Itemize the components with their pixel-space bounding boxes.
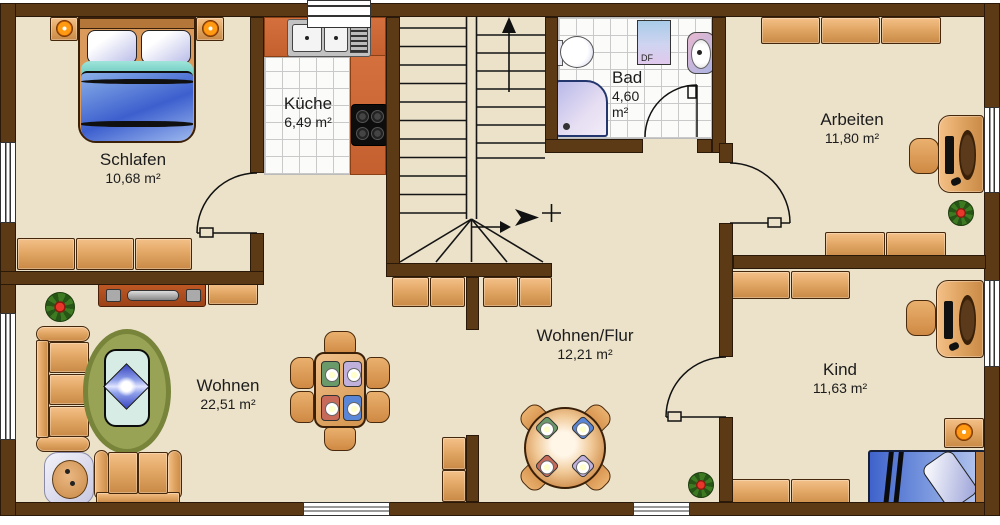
plate-icon <box>537 420 557 440</box>
armchair <box>44 452 94 505</box>
sink-basin-right <box>324 24 348 52</box>
round-table <box>524 407 606 489</box>
placemat <box>321 361 340 387</box>
monitor-icon <box>944 301 953 339</box>
wall-hall-stub-bottom <box>466 435 479 502</box>
window <box>984 280 1000 367</box>
plant-icon <box>45 292 75 322</box>
room-label-kind: Kind 11,63 m² <box>775 360 905 396</box>
room-label-kueche: Küche 6,49 m² <box>262 94 354 130</box>
wall-outer-bottom <box>0 502 1000 516</box>
coffee-table <box>104 349 150 427</box>
room-label-wohnen: Wohnen 22,51 m² <box>166 376 290 412</box>
room-area: 6,49 m² <box>262 114 354 130</box>
lamp-icon <box>202 20 219 37</box>
hall-sideboard <box>392 277 429 307</box>
room-name: Schlafen <box>53 150 213 170</box>
plate-icon <box>573 420 593 440</box>
sofa-back <box>36 340 49 438</box>
shelf-cabinet <box>761 17 820 44</box>
floor-plan: DF <box>0 0 1000 525</box>
hall-cabinet <box>442 437 466 470</box>
wall-office-child <box>733 255 986 269</box>
sink-basin-left <box>292 24 322 52</box>
window <box>633 502 690 516</box>
blanket-stripe <box>883 452 894 506</box>
monitor-icon <box>945 136 954 174</box>
plate-icon <box>537 458 557 478</box>
hall-sideboard <box>519 277 552 307</box>
wall-bath-south-left <box>545 139 643 153</box>
burner <box>356 110 369 123</box>
wall-stairs-left <box>386 17 400 265</box>
bed-blanket <box>81 71 193 141</box>
pillow <box>141 30 191 64</box>
hall-cabinet <box>442 470 466 502</box>
placemat <box>321 395 340 421</box>
button <box>65 469 70 474</box>
loveseat-cushion <box>108 452 138 494</box>
wall-bath-west <box>545 17 558 153</box>
wardrobe <box>76 238 134 270</box>
plate-icon <box>325 402 339 416</box>
loveseat <box>94 450 182 504</box>
wall-hall-stub-top <box>466 277 479 330</box>
lamp-icon <box>955 423 973 441</box>
room-label-arbeiten: Arbeiten 11,80 m² <box>792 110 912 146</box>
roof-window: DF <box>637 20 671 65</box>
burner <box>356 127 369 140</box>
plate-icon <box>347 368 361 382</box>
desk <box>938 115 984 193</box>
lamp-icon <box>56 20 73 37</box>
single-bed <box>868 450 986 508</box>
shelf-cabinet <box>821 17 880 44</box>
room-name: Kind <box>775 360 905 380</box>
washbasin <box>687 32 715 74</box>
desk <box>936 280 984 358</box>
room-area: 10,68 m² <box>53 170 213 186</box>
room-name: Arbeiten <box>792 110 912 130</box>
blanket-stripe <box>81 121 193 127</box>
sink-drainer <box>350 24 368 53</box>
placemat <box>570 415 595 440</box>
bed-headboard <box>80 19 194 29</box>
knob <box>106 289 121 302</box>
dining-chair <box>324 427 356 451</box>
table-decor-diamond <box>103 363 150 410</box>
sofa-cushion <box>49 342 89 373</box>
tv-handle <box>127 290 179 301</box>
cabinet <box>208 283 258 305</box>
burner <box>371 110 384 123</box>
dining-chair <box>366 357 390 389</box>
window <box>303 502 390 516</box>
shelf-cabinet <box>791 271 850 299</box>
pillow <box>87 30 137 64</box>
room-label-schlafen: Schlafen 10,68 m² <box>53 150 213 186</box>
window <box>984 107 1000 193</box>
shower <box>556 80 608 137</box>
placemat <box>343 395 362 421</box>
wall-hall-right-b <box>719 223 733 357</box>
wardrobe <box>17 238 75 270</box>
plant-icon <box>688 472 714 498</box>
room-area: 11,63 m² <box>775 380 905 396</box>
dining-table <box>314 352 366 428</box>
room-name: Küche <box>262 94 354 114</box>
room-name: Wohnen/Flur <box>500 326 670 346</box>
room-name: Bad <box>612 68 664 88</box>
toilet <box>560 36 594 68</box>
placemat <box>534 415 559 440</box>
cooktop <box>351 104 388 146</box>
office-chair <box>909 138 939 174</box>
wall-hall-right-c <box>719 417 733 502</box>
placemat <box>534 453 559 478</box>
roof-window-label: DF <box>641 53 653 63</box>
wall-stairs-south <box>386 263 552 277</box>
shower-drain <box>563 123 570 130</box>
dining-chair <box>290 357 314 389</box>
chimney <box>307 0 371 28</box>
shelf-cabinet <box>881 17 941 44</box>
room-label-bad: Bad 4,60 m² <box>612 68 664 120</box>
plate-icon <box>325 368 339 382</box>
placemat <box>343 361 362 387</box>
room-area: 12,21 m² <box>500 346 670 362</box>
plate-icon <box>347 402 361 416</box>
room-label-wohnen-flur: Wohnen/Flur 12,21 m² <box>500 326 670 362</box>
bed-headboard <box>975 452 984 506</box>
sink-drain <box>305 36 309 40</box>
mouse-icon <box>950 176 962 187</box>
blanket-stripe <box>81 79 193 84</box>
knob <box>186 289 201 302</box>
loveseat-cushion <box>138 452 168 494</box>
placemat <box>570 453 595 478</box>
mouse-icon <box>948 341 960 352</box>
sofa-arm <box>36 436 90 452</box>
basin-drain <box>697 50 702 55</box>
wall-bath-south-right <box>697 139 712 153</box>
plate-icon <box>573 458 593 478</box>
hall-sideboard <box>430 277 465 307</box>
room-area: 22,51 m² <box>166 396 290 412</box>
room-area: 4,60 m² <box>612 88 654 120</box>
sink-drain <box>334 36 338 40</box>
blanket-stripe <box>893 452 904 506</box>
armchair-cushion <box>52 460 88 499</box>
room-name: Wohnen <box>166 376 290 396</box>
plant-icon <box>948 200 974 226</box>
room-area: 11,80 m² <box>792 130 912 146</box>
dining-chair <box>366 391 390 423</box>
hall-sideboard <box>483 277 518 307</box>
wall-hall-right-a <box>719 143 733 163</box>
desk-chair-back <box>959 295 976 345</box>
wall-bedroom-south <box>0 271 264 285</box>
window <box>0 142 16 223</box>
office-chair <box>906 300 936 336</box>
wall-bath-east <box>712 17 726 153</box>
button <box>70 481 75 486</box>
burner <box>371 127 384 140</box>
sofa-cushion <box>49 406 89 437</box>
shelf-cabinet <box>731 271 790 299</box>
double-bed <box>78 17 196 143</box>
wall-outer-top <box>0 3 1000 17</box>
wall-outer-right <box>984 3 1000 516</box>
sofa <box>36 326 90 452</box>
wardrobe <box>135 238 192 270</box>
dining-chair <box>290 391 314 423</box>
window <box>0 313 16 440</box>
desk-chair-back <box>959 130 976 180</box>
